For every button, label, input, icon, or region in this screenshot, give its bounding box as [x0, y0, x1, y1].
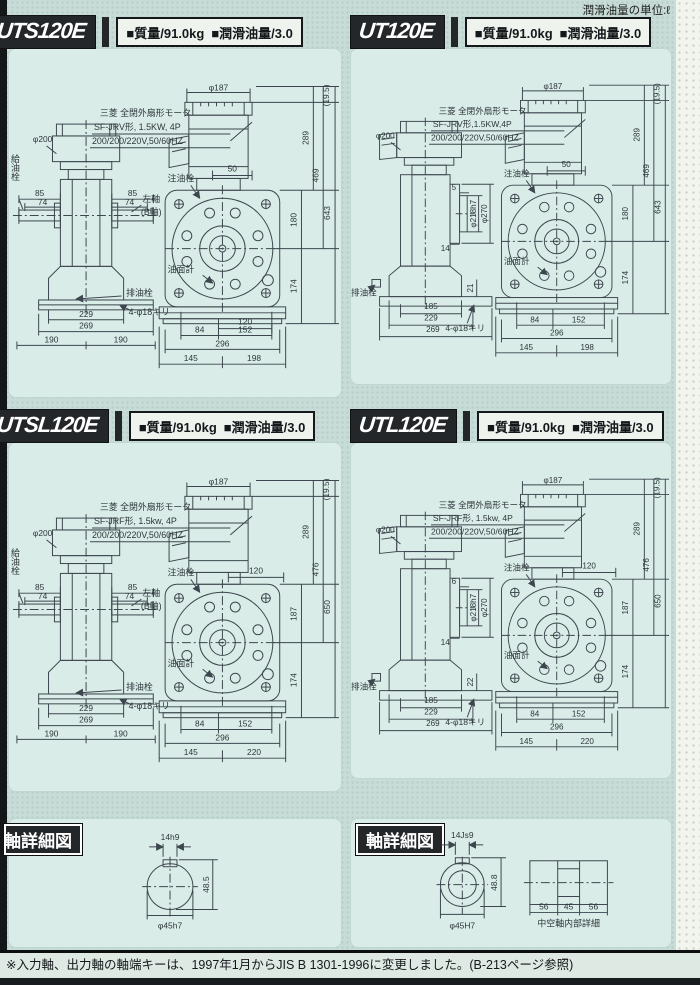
shaft-card: 軸詳細図 14Js9 48.8	[350, 818, 672, 948]
dim-flange-14: 14	[441, 638, 450, 647]
dim-289: 289	[633, 127, 642, 141]
spec-box: ■質量/91.0kg ■潤滑油量/3.0	[116, 17, 302, 47]
spec-mass: ■質量/91.0kg	[487, 417, 565, 436]
motor-note-line2: SF-JRF形, 1.5kw, 4P	[94, 515, 177, 526]
dim-flange-14: 14	[441, 244, 450, 253]
dim-198: 198	[580, 343, 594, 352]
model-badge: UTSL120E	[0, 409, 109, 443]
motor-note-line1: 三菱 全閉外扇形モータ	[100, 107, 191, 118]
spec-mass: ■質量/91.0kg	[475, 23, 553, 42]
dim-296: 296	[215, 732, 229, 742]
dim-220: 220	[247, 747, 261, 757]
dim-145: 145	[184, 353, 198, 363]
motor-note-line3: 200/200/220V,50/60HZ	[92, 530, 184, 540]
dim-phi270: φ270	[480, 204, 489, 223]
dim-seg-56a: 56	[539, 901, 549, 911]
drawing-card: 三菱 全閉外扇形モータ SF-JRV形, 1.5KW, 4P 200/200/2…	[8, 48, 342, 398]
shaft-detail-right: 軸詳細図 14Js9 48.8	[350, 818, 672, 948]
spec-mass: ■質量/91.0kg	[139, 417, 217, 436]
label-inject-plug: 注油栓	[504, 562, 530, 573]
header-separator	[463, 411, 470, 441]
dim-120: 120	[582, 562, 596, 571]
shaft-drawing-solid: 14h9 48.5 φ45h7	[9, 823, 341, 942]
dim-650: 650	[322, 600, 332, 614]
model-name: UTL120E	[358, 412, 448, 438]
technical-drawing-utl120e: 三菱 全閉外扇形モータ SF-JRF形, 1.5kw, 4P 200/200/2…	[351, 443, 671, 778]
dim-19-5: (19.5)	[653, 477, 662, 498]
motor-note-line1: 三菱 全閉外扇形モータ	[100, 501, 191, 512]
spec-box: ■質量/91.0kg ■潤滑油量/3.0	[129, 411, 315, 441]
dim-74-left: 74	[38, 591, 48, 601]
dim-84: 84	[195, 719, 205, 729]
spec-oil: ■潤滑油量/3.0	[224, 417, 306, 436]
dim-phi200: φ200	[33, 528, 53, 538]
dim-phi187: φ187	[209, 82, 229, 92]
dim-50: 50	[228, 164, 238, 174]
dim-289: 289	[300, 525, 310, 539]
dim-269: 269	[426, 719, 440, 728]
panel-utsl120e: UTSL120E ■質量/91.0kg ■潤滑油量/3.0 三菱 全閉外扇形モー…	[8, 410, 342, 792]
motor-note-line1: 三菱 全閉外扇形モータ	[439, 105, 527, 116]
dim-269: 269	[79, 321, 93, 331]
dim-190-right: 190	[114, 334, 128, 344]
label-inject-plug: 注油栓	[504, 168, 530, 179]
dim-476: 476	[642, 558, 651, 572]
panel-uts120e: UTS120E ■質量/91.0kg ■潤滑油量/3.0 三菱 全閉外扇形モータ…	[8, 16, 342, 398]
panel-ut120e: UT120E ■質量/91.0kg ■潤滑油量/3.0 三菱 全閉外扇形モータ …	[350, 16, 672, 385]
dim-180: 180	[621, 207, 630, 221]
dim-187: 187	[289, 607, 299, 621]
dim-152: 152	[572, 315, 586, 324]
dim-phi218h7: φ218h7	[469, 593, 478, 621]
dim-145: 145	[519, 343, 533, 352]
dim-keyway-14h9: 14h9	[161, 832, 180, 842]
dim-19-5: (19.5)	[653, 83, 662, 104]
dim-152: 152	[238, 719, 252, 729]
panel-header: UTL120E ■質量/91.0kg ■潤滑油量/3.0	[350, 410, 672, 442]
dim-650: 650	[654, 594, 663, 608]
model-badge: UT120E	[350, 15, 445, 49]
header-separator	[102, 17, 109, 47]
dim-120: 120	[249, 565, 263, 575]
dim-174: 174	[289, 279, 299, 293]
motor-note-line1: 三菱 全閉外扇形モータ	[439, 499, 527, 510]
dim-152: 152	[238, 325, 252, 335]
dim-19-5: (19.5)	[321, 84, 331, 106]
shaft-drawing-hollow: 14Js9 48.8 φ45H7 56 45 56 中空軸内部詳細	[351, 823, 671, 942]
shaft-detail-left: 軸詳細図 14h9 48.5 φ45h7	[8, 818, 342, 948]
dim-152: 152	[572, 709, 586, 718]
dim-seg-45: 45	[564, 901, 574, 911]
dim-84: 84	[530, 709, 539, 718]
dim-289: 289	[633, 521, 642, 535]
spec-mass: ■質量/91.0kg	[126, 23, 204, 42]
motor-note-line2: SF-JRF形, 1.5kw, 4P	[433, 513, 513, 523]
model-badge: UTS120E	[0, 15, 96, 49]
dim-74-left: 74	[38, 197, 48, 207]
spec-oil: ■潤滑油量/3.0	[572, 417, 654, 436]
dim-643: 643	[322, 206, 332, 220]
label-bolt-holes: 4-φ18キリ	[129, 701, 170, 711]
header-separator	[115, 411, 122, 441]
motor-note-line3: 200/200/220V,50/60HZ	[431, 526, 519, 536]
panel-header: UTS120E ■質量/91.0kg ■潤滑油量/3.0	[8, 16, 342, 48]
dim-seg-56b: 56	[589, 901, 599, 911]
dim-229: 229	[424, 313, 438, 322]
label-oil-gauge: 油面計	[168, 657, 195, 668]
motor-note-line2: SF-JRV形, 1.5KW, 4P	[94, 121, 181, 132]
footer-note: ※入力軸、出力軸の軸端キーは、1997年1月からJIS B 1301-1996に…	[6, 958, 573, 972]
label-bolt-holes: 4-φ18キリ	[445, 717, 485, 727]
label-drain-plug: 排油栓	[351, 681, 377, 692]
label-drain-plug: 排油栓	[126, 681, 153, 692]
dim-289: 289	[300, 131, 310, 145]
dim-flange-6: 6	[452, 577, 457, 586]
dim-74-right: 74	[125, 591, 135, 601]
label-filler-plug: 給油栓	[10, 153, 20, 182]
motor-note-line2: SF-JRV形,1.5KW,4P	[433, 119, 512, 129]
panel-header: UTSL120E ■質量/91.0kg ■潤滑油量/3.0	[8, 410, 342, 442]
dim-296: 296	[550, 329, 564, 338]
spec-box: ■質量/91.0kg ■潤滑油量/3.0	[477, 411, 663, 441]
header-separator	[451, 17, 458, 47]
dim-198: 198	[247, 353, 261, 363]
shaft-card: 軸詳細図 14h9 48.5 φ45h7	[8, 818, 342, 948]
dim-229: 229	[79, 703, 93, 713]
dim-229: 229	[424, 707, 438, 716]
dim-269: 269	[426, 325, 440, 334]
dim-depth-48-8: 48.8	[489, 874, 499, 891]
dim-145: 145	[519, 737, 533, 746]
dim-phi218h7: φ218h7	[469, 199, 478, 227]
hollow-shaft-caption: 中空軸内部詳細	[537, 917, 600, 928]
dim-296: 296	[550, 723, 564, 732]
dim-269: 269	[79, 715, 93, 725]
label-inject-plug: 注油栓	[168, 172, 195, 183]
drawing-card: 三菱 全閉外扇形モータ SF-JRV形,1.5KW,4P 200/200/220…	[350, 48, 672, 385]
motor-note-line3: 200/200/220V,50/60HZ	[431, 132, 519, 142]
model-name: UTSL120E	[0, 412, 99, 438]
dim-phi200: φ200	[376, 526, 395, 535]
overlay-dims	[370, 513, 616, 717]
footer-note-bar: ※入力軸、出力軸の軸端キーは、1997年1月からJIS B 1301-1996に…	[0, 950, 700, 978]
scan-edge-bottom	[0, 978, 700, 985]
dim-depth-48-5: 48.5	[201, 876, 211, 893]
label-bolt-holes: 4-φ18キリ	[445, 323, 485, 333]
dim-187: 187	[621, 601, 630, 615]
drawing-card: 三菱 全閉外扇形モータ SF-JRF形, 1.5kw, 4P 200/200/2…	[8, 442, 342, 792]
dim-190-right: 190	[114, 728, 128, 738]
spec-oil: ■潤滑油量/3.0	[211, 23, 293, 42]
dim-180: 180	[289, 213, 299, 227]
dim-190-left: 190	[45, 728, 59, 738]
dim-phi187: φ187	[544, 82, 563, 91]
dim-185: 185	[424, 696, 438, 705]
panel-header: UT120E ■質量/91.0kg ■潤滑油量/3.0	[350, 16, 672, 48]
model-name: UTS120E	[0, 18, 87, 44]
label-left-shaft-b: (B軸)	[141, 600, 162, 611]
dim-22: 22	[466, 677, 475, 686]
dim-phi187: φ187	[544, 476, 563, 485]
dim-296: 296	[215, 338, 229, 348]
dim-phi187: φ187	[209, 476, 229, 486]
label-left-shaft: 左軸	[142, 587, 160, 598]
dim-145: 145	[184, 747, 198, 757]
label-drain-plug: 排油栓	[351, 287, 377, 298]
label-oil-gauge: 油面計	[168, 263, 195, 274]
dim-shaft-dia-45h7: φ45h7	[158, 920, 183, 930]
dim-keyway-14js9: 14Js9	[451, 830, 474, 840]
model-name: UT120E	[358, 18, 435, 44]
dim-174: 174	[289, 673, 299, 687]
spec-oil: ■潤滑油量/3.0	[560, 23, 642, 42]
dim-190-left: 190	[45, 334, 59, 344]
dim-469: 469	[642, 164, 651, 178]
motor-note-line3: 200/200/220V,50/60HZ	[92, 136, 184, 146]
dim-220: 220	[580, 737, 594, 746]
label-left-shaft: 左軸	[142, 193, 160, 204]
label-oil-gauge: 油面計	[504, 255, 530, 266]
dim-84: 84	[530, 315, 539, 324]
dim-phi200: φ200	[376, 132, 395, 141]
dim-643: 643	[654, 200, 663, 214]
dim-21: 21	[466, 283, 475, 292]
page-margin-right	[676, 0, 700, 950]
dim-flange-5: 5	[452, 183, 457, 192]
dim-phi200: φ200	[33, 134, 53, 144]
technical-drawing-ut120e: 三菱 全閉外扇形モータ SF-JRV形,1.5KW,4P 200/200/220…	[351, 49, 671, 384]
label-filler-plug: 給油栓	[10, 547, 20, 576]
dim-185: 185	[424, 302, 438, 311]
dim-174: 174	[621, 270, 630, 284]
label-bolt-holes: 4-φ18キリ	[129, 307, 170, 317]
dim-bore-dia-45h7: φ45H7	[449, 920, 475, 930]
dim-84: 84	[195, 325, 205, 335]
drawing-card: 三菱 全閉外扇形モータ SF-JRF形, 1.5kw, 4P 200/200/2…	[350, 442, 672, 779]
technical-drawing-uts120e: 三菱 全閉外扇形モータ SF-JRV形, 1.5KW, 4P 200/200/2…	[9, 49, 341, 397]
dim-476: 476	[310, 562, 320, 576]
model-badge: UTL120E	[350, 409, 457, 443]
label-left-shaft-b: (B軸)	[141, 206, 162, 217]
dim-229: 229	[79, 309, 93, 319]
spec-box: ■質量/91.0kg ■潤滑油量/3.0	[465, 17, 651, 47]
dim-50: 50	[562, 160, 571, 169]
dim-19-5: (19.5)	[321, 478, 331, 500]
dim-phi270: φ270	[480, 598, 489, 617]
dim-74-right: 74	[125, 197, 135, 207]
dim-174: 174	[621, 664, 630, 678]
panel-utl120e: UTL120E ■質量/91.0kg ■潤滑油量/3.0 三菱 全閉外扇形モータ…	[350, 410, 672, 779]
shaft-geometry	[436, 842, 613, 919]
label-oil-gauge: 油面計	[504, 649, 530, 660]
label-inject-plug: 注油栓	[168, 566, 195, 577]
technical-drawing-utsl120e: 三菱 全閉外扇形モータ SF-JRF形, 1.5kw, 4P 200/200/2…	[9, 443, 341, 791]
dim-469: 469	[310, 168, 320, 182]
label-drain-plug: 排油栓	[126, 287, 153, 298]
